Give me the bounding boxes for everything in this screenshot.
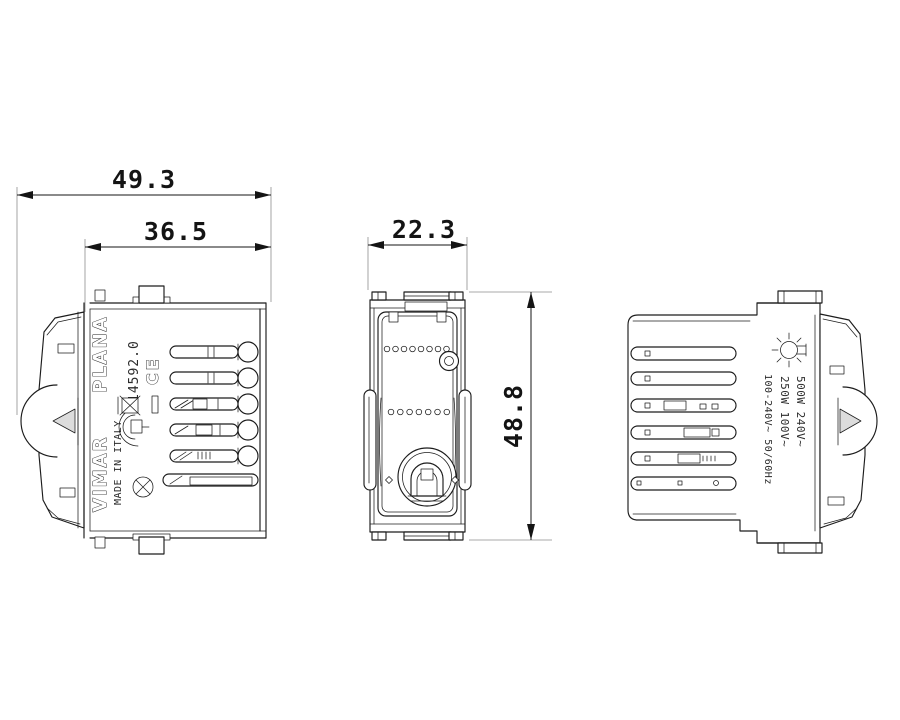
origin-text: MADE IN ITALY <box>113 420 124 505</box>
top-mounting-tabs <box>372 292 463 300</box>
front-view <box>364 292 471 540</box>
ce-mark: CE <box>143 356 162 385</box>
dim-body-depth-value: 36.5 <box>144 217 208 246</box>
technical-drawing-canvas: 49.3 36.5 22.3 48.8 <box>0 0 900 720</box>
dimension-module-width-22-3: 22.3 <box>368 215 467 290</box>
rocker-button-profile-right <box>820 314 877 528</box>
top-mounting-tab-right-view <box>778 291 822 303</box>
weee-crossed-bin-icon <box>118 396 140 415</box>
dim-module-height-value: 48.8 <box>499 384 528 448</box>
top-mounting-tab <box>139 286 164 303</box>
bottom-hook <box>95 537 105 548</box>
minus-bar-icon <box>152 396 158 413</box>
rating-line-3: 100-240V~ 50/60Hz <box>762 374 773 485</box>
dimension-body-depth-36-5: 36.5 <box>85 217 271 312</box>
brand-text: VIMAR <box>90 436 111 512</box>
rocker-button-profile-left <box>21 312 84 528</box>
dim-overall-depth-value: 49.3 <box>112 165 176 194</box>
left-side-view: VIMAR PLANA MADE IN ITALY 14592.0 CE <box>21 286 266 554</box>
module-body-right-view <box>628 291 822 553</box>
rating-line-2: 250W 100V~ <box>778 376 791 447</box>
top-hook <box>95 290 105 301</box>
series-text: PLANA <box>90 315 111 393</box>
dimension-module-height-48-8: 48.8 <box>469 292 552 540</box>
rocker-pivot-bulge <box>21 385 57 457</box>
dim-module-width-value: 22.3 <box>392 215 456 244</box>
potentiometer <box>440 352 459 371</box>
bottom-mounting-tabs <box>372 532 463 540</box>
rating-line-1: 500W 240V~ <box>794 376 807 447</box>
model-number-text: 14592.0 <box>127 340 142 402</box>
drawing-page: 49.3 36.5 22.3 48.8 <box>0 0 900 720</box>
bottom-mounting-tab <box>139 537 164 554</box>
left-view-markings: VIMAR PLANA MADE IN ITALY 14592.0 CE <box>90 315 162 512</box>
screw-head-icon <box>133 477 153 497</box>
heatsink-fins-left-view <box>163 342 258 486</box>
bottom-mounting-tab-right-view <box>778 543 822 553</box>
right-side-view: 500W 240V~ 250W 100V~ 100-240V~ 50/60Hz <box>628 291 877 553</box>
